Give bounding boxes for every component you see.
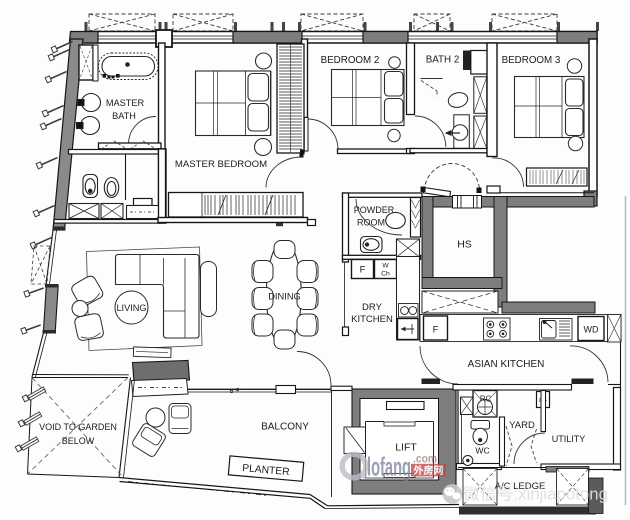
svg-text:W: W (382, 263, 389, 270)
svg-text:YARD: YARD (509, 420, 535, 431)
svg-text:LIVING: LIVING (116, 303, 146, 313)
svg-text:BELOW: BELOW (62, 436, 95, 446)
svg-text:MASTER: MASTER (106, 98, 145, 108)
svg-text:BEDROOM 3: BEDROOM 3 (502, 55, 561, 66)
svg-text:.com: .com (413, 454, 437, 466)
svg-text:WD: WD (584, 325, 599, 335)
svg-text:ASIAN KITCHEN: ASIAN KITCHEN (468, 359, 545, 370)
svg-text:MASTER BEDROOM: MASTER BEDROOM (175, 159, 267, 170)
svg-text:F: F (433, 325, 439, 336)
svg-text:ROOM: ROOM (357, 218, 385, 228)
svg-text:VOID TO GARDEN: VOID TO GARDEN (39, 422, 117, 432)
svg-text:BALCONY: BALCONY (261, 422, 309, 433)
svg-text:BATH 2: BATH 2 (426, 55, 460, 66)
svg-text:微信号:xinjiapotong: 微信号:xinjiapotong (463, 485, 608, 504)
svg-text:UTILITY: UTILITY (552, 434, 586, 444)
svg-text:RC: RC (480, 395, 492, 404)
svg-text:Ch: Ch (381, 271, 390, 278)
svg-text:外房网: 外房网 (413, 464, 444, 477)
svg-text:WC: WC (475, 446, 489, 456)
svg-text:POWDER: POWDER (354, 205, 395, 215)
svg-text:BEDROOM 2: BEDROOM 2 (321, 55, 380, 66)
svg-text:HS: HS (457, 239, 472, 251)
svg-text:BATH: BATH (112, 111, 136, 121)
svg-text:DINING: DINING (268, 292, 301, 302)
svg-text:KITCHEN: KITCHEN (351, 314, 393, 325)
svg-text:F: F (360, 265, 366, 276)
svg-text:DRY: DRY (362, 302, 383, 313)
svg-text:lofang: lofang (367, 452, 411, 482)
